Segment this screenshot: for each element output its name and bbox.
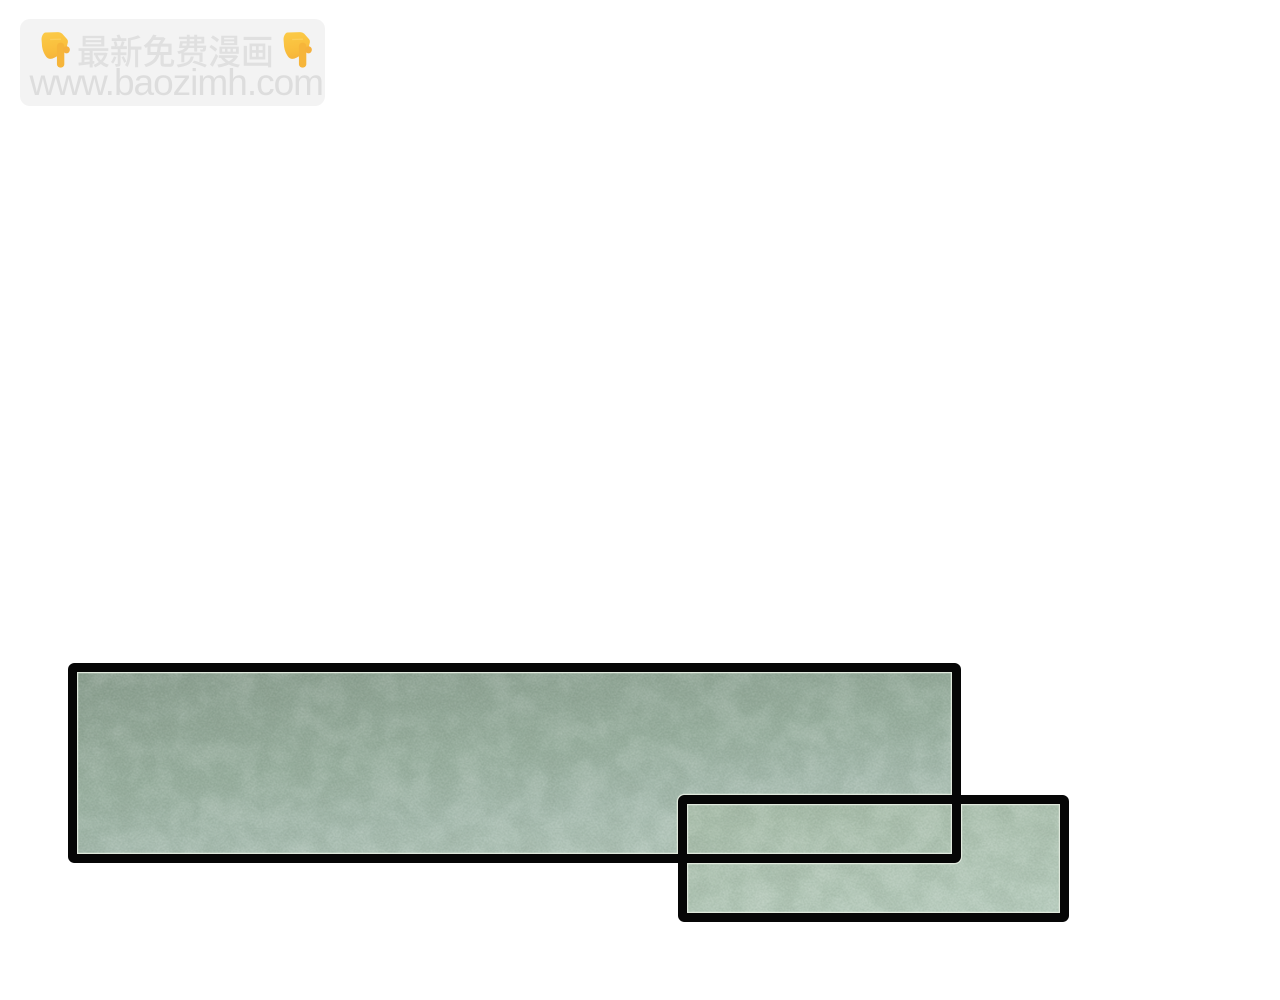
svg-text:www.baozimh.com: www.baozimh.com [29,62,325,103]
